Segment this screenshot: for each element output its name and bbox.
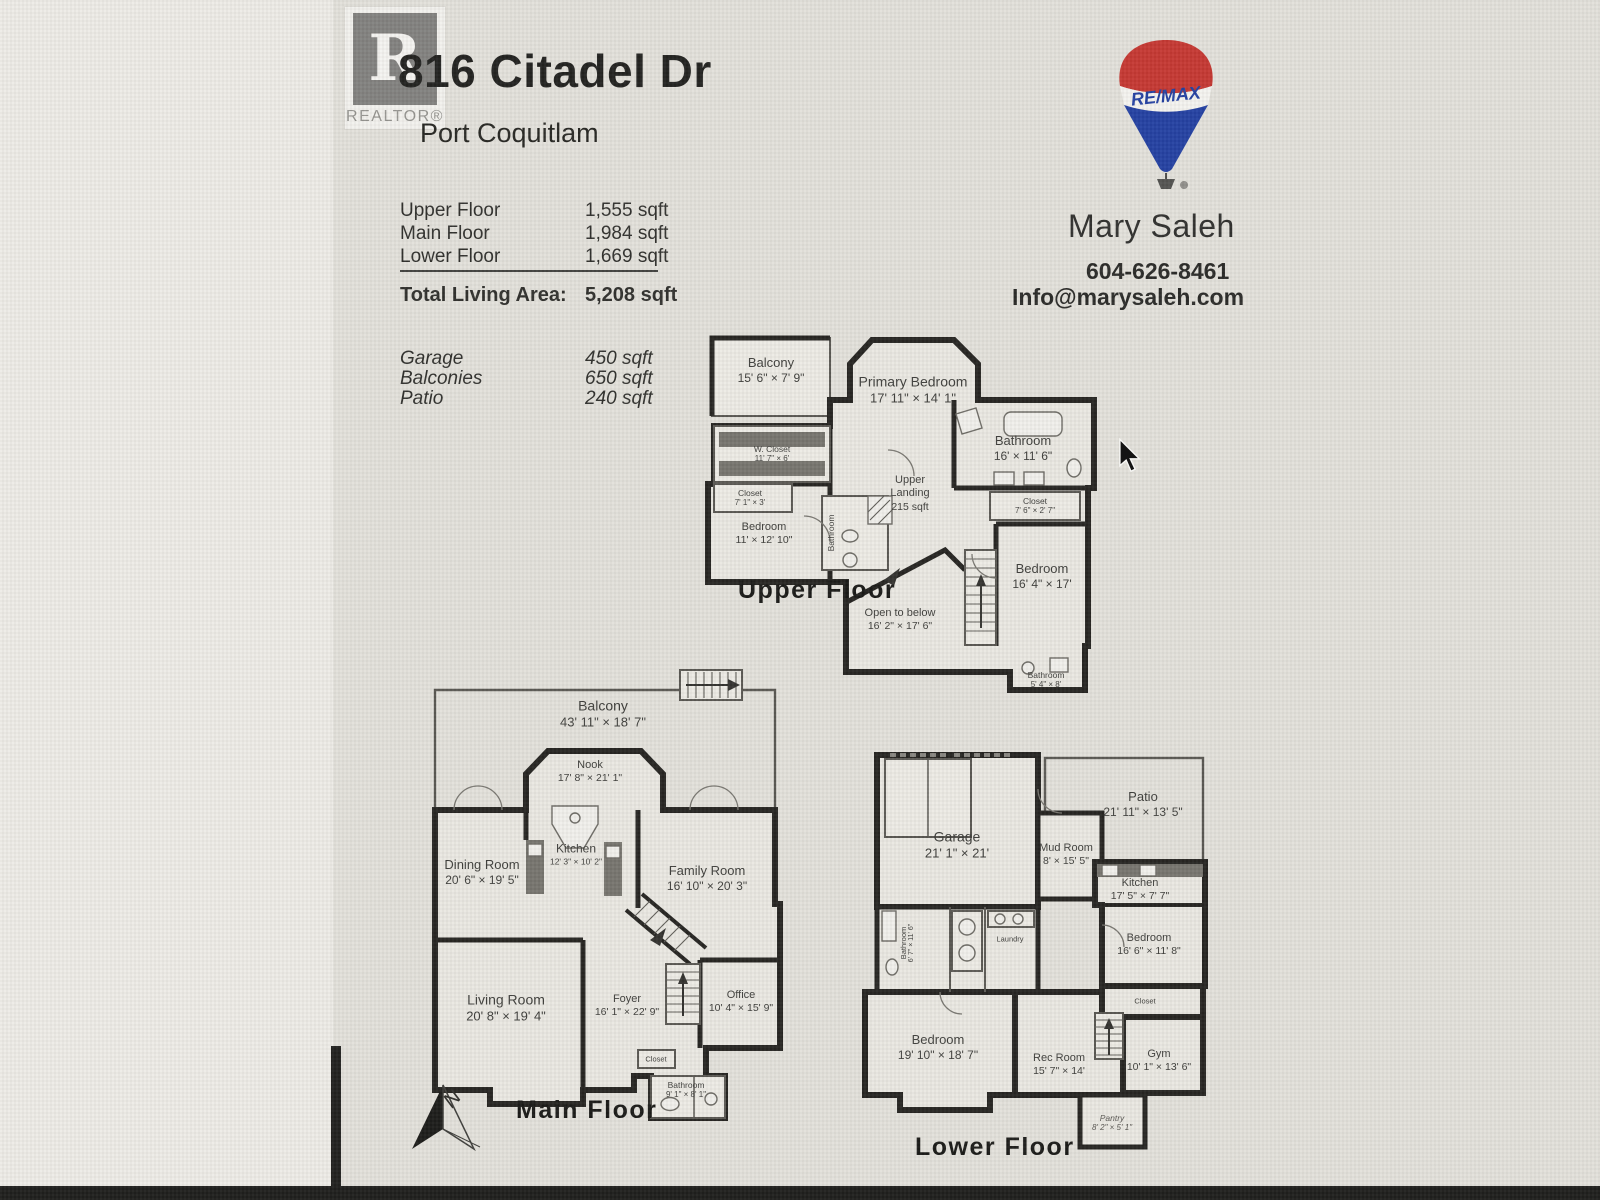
room-label: Bathroom 9' 1" × 8' 1" bbox=[666, 1080, 706, 1100]
room-label: Family Room 16' 10" × 20' 3" bbox=[667, 863, 747, 893]
room-label: Closet 7' 1" × 3' bbox=[735, 488, 766, 508]
floor-title-upper: Upper Floor bbox=[738, 576, 896, 605]
room-label: Balcony 43' 11" × 18' 7" bbox=[560, 698, 646, 731]
agent-email: Info@marysaleh.com bbox=[1012, 284, 1244, 311]
lower-kitchen-fixtures bbox=[1097, 864, 1203, 877]
upper-floor-plan: Balcony 15' 6" × 7' 9" Primary Bedroom 1… bbox=[698, 328, 1128, 708]
agent-name: Mary Saleh bbox=[1068, 208, 1235, 245]
room-label: Laundry bbox=[996, 934, 1023, 943]
room-label: Mud Room 8' × 15' 5" bbox=[1039, 842, 1093, 868]
extra-area-label: Patio bbox=[400, 388, 443, 410]
area-row-value: 1,984 sqft bbox=[585, 223, 668, 245]
extra-area-value: 240 sqft bbox=[585, 388, 653, 410]
room-label: Bathroom bbox=[826, 515, 836, 552]
area-row-label: Upper Floor bbox=[400, 200, 500, 222]
extra-area-value: 450 sqft bbox=[585, 348, 653, 370]
remax-balloon-logo: RE/MAX bbox=[1105, 36, 1227, 203]
room-label: Open to below 16' 2" × 17' 6" bbox=[865, 607, 936, 633]
north-compass: N bbox=[412, 1085, 480, 1149]
lower-floor-plan: Garage 21' 1" × 21' Patio 21' 11" × 13' … bbox=[840, 725, 1220, 1170]
floor-plan-sheet: R REALTOR® 816 Citadel Dr Port Coquitlam… bbox=[0, 0, 1600, 1200]
room-label: Closet bbox=[1134, 996, 1155, 1005]
room-label: Upper Landing 215 sqft bbox=[877, 474, 943, 514]
total-area-value: 5,208 sqft bbox=[585, 284, 677, 307]
area-row-value: 1,669 sqft bbox=[585, 246, 668, 268]
room-label: Bathroom 16' × 11' 6" bbox=[994, 433, 1052, 463]
mouse-cursor-icon bbox=[1118, 438, 1144, 479]
room-label: Pantry 8' 2" × 5' 1" bbox=[1092, 1113, 1132, 1133]
agent-phone: 604-626-8461 bbox=[1086, 258, 1229, 285]
floor-title-main: Main Floor bbox=[516, 1096, 657, 1125]
room-label: Bedroom 16' 6" × 11' 8" bbox=[1117, 932, 1181, 958]
room-label: Dining Room 20' 6" × 19' 5" bbox=[444, 857, 519, 887]
room-label: Bedroom 16' 4" × 17' bbox=[1012, 561, 1071, 591]
room-label: Bedroom 11' × 12' 10" bbox=[736, 521, 793, 547]
floor-title-lower: Lower Floor bbox=[915, 1133, 1075, 1162]
room-label: Living Room 20' 8" × 19' 4" bbox=[466, 992, 546, 1025]
extra-area-value: 650 sqft bbox=[585, 368, 653, 390]
room-label: Balcony 15' 6" × 7' 9" bbox=[738, 355, 805, 385]
room-label: Kitchen 12' 3" × 10' 2" bbox=[550, 842, 602, 867]
room-label: Nook 17' 8" × 21' 1" bbox=[558, 759, 622, 785]
room-label: Foyer 16' 1" × 22' 9" bbox=[595, 993, 659, 1019]
room-label: Bedroom 19' 10" × 18' 7" bbox=[898, 1032, 978, 1062]
area-row-label: Lower Floor bbox=[400, 246, 500, 268]
room-label: Gym 10' 1" × 13' 6" bbox=[1127, 1048, 1191, 1074]
room-label: Office 10' 4" × 15' 9" bbox=[709, 989, 773, 1015]
room-label: Bathroom 5' 4" × 8' bbox=[1028, 670, 1065, 690]
total-area-label: Total Living Area: bbox=[400, 284, 567, 307]
table-divider bbox=[400, 270, 658, 272]
extra-area-label: Garage bbox=[400, 348, 463, 370]
main-floor-plan: N Balcony 43' 11" × 18' 7" Nook 17' 8" ×… bbox=[398, 658, 818, 1158]
room-label: Primary Bedroom 17' 11" × 14' 1" bbox=[859, 374, 968, 407]
area-row-value: 1,555 sqft bbox=[585, 200, 668, 222]
extra-area-label: Balconies bbox=[400, 368, 482, 390]
room-label: W. Closet 11' 7" × 6' bbox=[754, 444, 790, 464]
area-row-label: Main Floor bbox=[400, 223, 490, 245]
room-label: Closet 7' 6" × 2' 7" bbox=[1015, 496, 1055, 516]
room-label: Rec Room 15' 7" × 14' bbox=[1033, 1052, 1085, 1078]
room-label: Bathroom 6' 7" × 11' 6" bbox=[899, 924, 917, 962]
main-floor-drawing: N bbox=[398, 658, 818, 1158]
room-label: Patio 21' 11" × 13' 5" bbox=[1103, 789, 1182, 819]
screen-edge bbox=[331, 1046, 341, 1186]
page-left-margin bbox=[0, 0, 333, 1200]
room-label: Kitchen 17' 5" × 7' 7" bbox=[1111, 877, 1169, 903]
main-walls bbox=[435, 751, 780, 1118]
page-subtitle: Port Coquitlam bbox=[420, 118, 599, 149]
remax-balloon-icon: RE/MAX bbox=[1105, 36, 1227, 198]
room-label: Garage 21' 1" × 21' bbox=[925, 829, 989, 862]
screen-bottom-edge bbox=[0, 1186, 1600, 1200]
lower-stairs bbox=[1095, 1013, 1123, 1059]
page-title: 816 Citadel Dr bbox=[398, 44, 712, 98]
room-label: Closet bbox=[645, 1054, 666, 1063]
